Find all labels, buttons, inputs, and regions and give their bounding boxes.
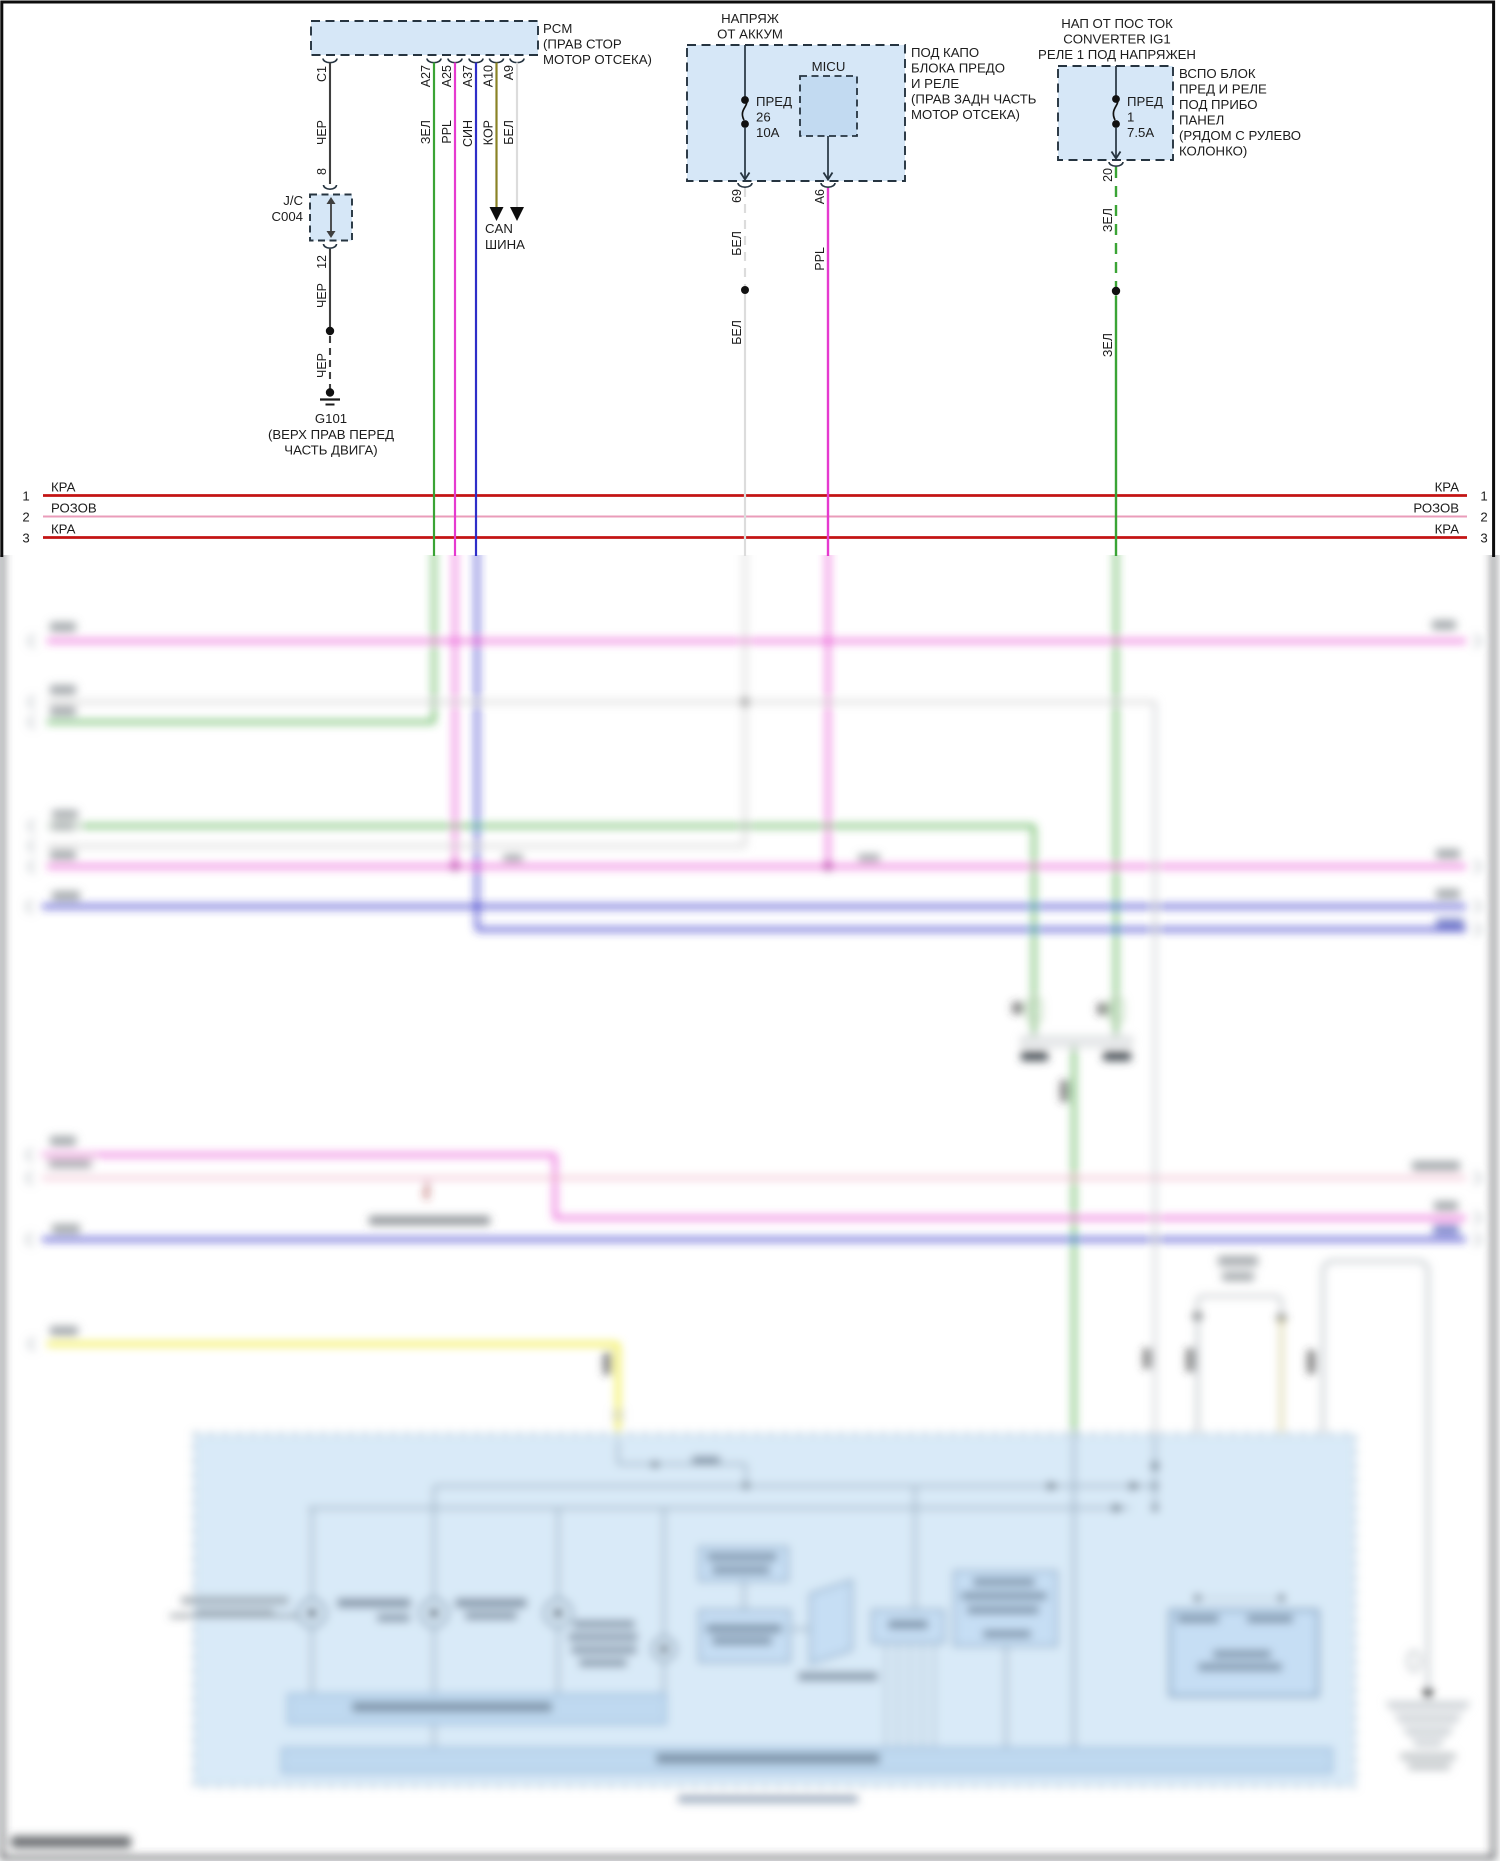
svg-text:7.5A: 7.5A (1127, 125, 1154, 140)
svg-text:CAN: CAN (485, 221, 513, 236)
svg-text:3: 3 (1480, 531, 1487, 546)
svg-text:РЕЛЕ 1 ПОД НАПРЯЖЕН: РЕЛЕ 1 ПОД НАПРЯЖЕН (1038, 47, 1196, 62)
svg-text:C1: C1 (315, 66, 329, 82)
svg-text:ПАНЕЛ: ПАНЕЛ (1179, 113, 1224, 128)
svg-text:J/C: J/C (283, 193, 303, 208)
svg-text:ПОД ПРИБО: ПОД ПРИБО (1179, 97, 1258, 112)
svg-text:БЛОКА ПРЕДО: БЛОКА ПРЕДО (911, 61, 1005, 76)
svg-text:ПОД КАПО: ПОД КАПО (911, 45, 979, 60)
svg-text:КРА: КРА (51, 480, 76, 495)
svg-text:МОТОР ОТСЕКА): МОТОР ОТСЕКА) (543, 52, 652, 67)
svg-text:CONVERTER IG1: CONVERTER IG1 (1063, 32, 1170, 47)
svg-text:MICU: MICU (812, 59, 846, 74)
svg-text:A27: A27 (419, 65, 433, 87)
svg-text:(ПРАВ ЗАДН ЧАСТЬ: (ПРАВ ЗАДН ЧАСТЬ (911, 92, 1036, 107)
svg-text:ЗЕЛ: ЗЕЛ (1101, 333, 1115, 357)
svg-text:8: 8 (315, 168, 329, 175)
svg-text:НАПРЯЖ: НАПРЯЖ (721, 11, 779, 26)
svg-text:ВСПО БЛОК: ВСПО БЛОК (1179, 66, 1256, 81)
svg-text:1: 1 (1480, 489, 1487, 504)
svg-text:ПРЕД: ПРЕД (756, 94, 792, 109)
svg-text:C004: C004 (271, 209, 303, 224)
svg-text:И РЕЛЕ: И РЕЛЕ (911, 76, 959, 91)
svg-text:G101: G101 (315, 411, 347, 426)
svg-text:1: 1 (22, 489, 29, 504)
svg-text:ЗЕЛ: ЗЕЛ (1101, 208, 1115, 232)
svg-text:(ВЕРХ ПРАВ ПЕРЕД: (ВЕРХ ПРАВ ПЕРЕД (268, 427, 394, 442)
svg-text:A9: A9 (502, 65, 516, 80)
svg-text:КОР: КОР (482, 120, 496, 145)
svg-text:2: 2 (1480, 510, 1487, 525)
svg-text:A10: A10 (482, 65, 496, 87)
svg-text:69: 69 (730, 189, 744, 203)
svg-text:ПРЕД: ПРЕД (1127, 94, 1163, 109)
svg-text:ЧЕР: ЧЕР (315, 283, 329, 308)
svg-text:ШИНА: ШИНА (485, 237, 525, 252)
svg-text:БЕЛ: БЕЛ (730, 231, 744, 256)
svg-text:БЕЛ: БЕЛ (502, 120, 516, 145)
svg-text:СИН: СИН (461, 120, 475, 147)
svg-text:КРА: КРА (1435, 522, 1460, 537)
svg-text:БЕЛ: БЕЛ (730, 320, 744, 345)
svg-text:PCM: PCM (543, 21, 572, 36)
svg-text:КРА: КРА (1435, 480, 1460, 495)
svg-text:КОЛОНКО): КОЛОНКО) (1179, 144, 1247, 159)
svg-text:ЧЕР: ЧЕР (315, 120, 329, 145)
svg-text:1: 1 (1127, 110, 1134, 125)
svg-text:НАП ОТ ПОС ТОК: НАП ОТ ПОС ТОК (1061, 16, 1173, 31)
svg-text:A37: A37 (461, 65, 475, 87)
svg-text:26: 26 (756, 110, 771, 125)
svg-text:(ПРАВ СТОР: (ПРАВ СТОР (543, 37, 622, 52)
svg-text:20: 20 (1101, 168, 1115, 182)
svg-text:A25: A25 (440, 65, 454, 87)
svg-text:ПРЕД И РЕЛЕ: ПРЕД И РЕЛЕ (1179, 82, 1267, 97)
svg-text:10A: 10A (756, 125, 780, 140)
svg-text:МОТОР ОТСЕКА): МОТОР ОТСЕКА) (911, 107, 1020, 122)
svg-text:3: 3 (22, 531, 29, 546)
svg-text:ЧЕР: ЧЕР (315, 353, 329, 378)
svg-text:ОТ АККУМ: ОТ АККУМ (717, 27, 783, 42)
svg-text:PPL: PPL (813, 247, 827, 271)
svg-text:PPL: PPL (440, 120, 454, 144)
svg-text:КРА: КРА (51, 522, 76, 537)
svg-text:2: 2 (22, 510, 29, 525)
svg-text:A6: A6 (813, 189, 827, 204)
svg-text:РОЗОВ: РОЗОВ (1413, 501, 1459, 516)
svg-text:12: 12 (315, 255, 329, 269)
svg-text:РОЗОВ: РОЗОВ (51, 501, 97, 516)
svg-text:ЗЕЛ: ЗЕЛ (419, 120, 433, 144)
svg-text:(РЯДОМ С РУЛЕВО: (РЯДОМ С РУЛЕВО (1179, 128, 1301, 143)
svg-text:ЧАСТЬ ДВИГА): ЧАСТЬ ДВИГА) (284, 443, 377, 458)
